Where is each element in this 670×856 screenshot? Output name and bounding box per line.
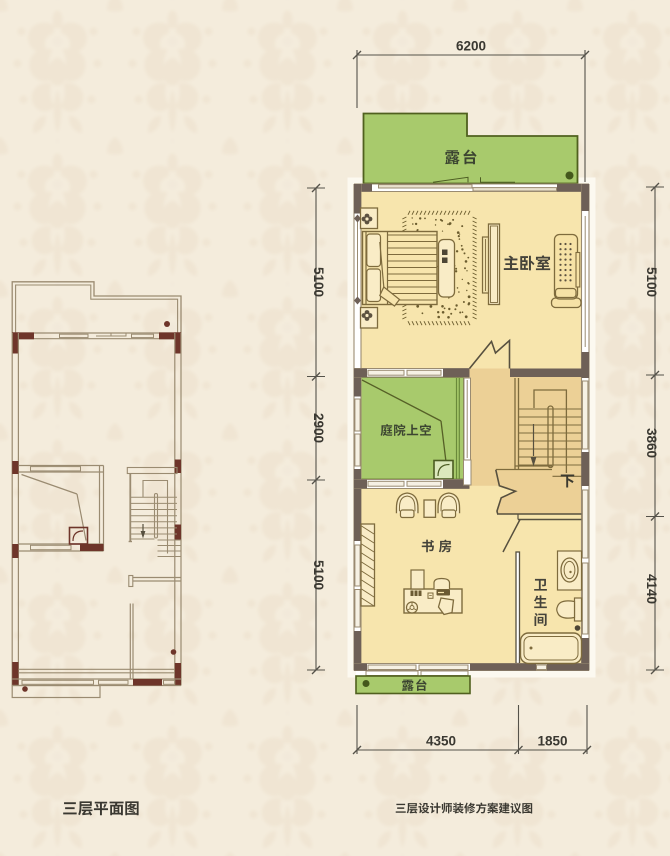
svg-text:5100: 5100 (644, 267, 659, 297)
svg-text:6200: 6200 (456, 39, 486, 54)
svg-text:5100: 5100 (311, 560, 326, 590)
svg-text:5100: 5100 (311, 267, 326, 297)
svg-text:3860: 3860 (644, 428, 659, 458)
svg-text:4140: 4140 (644, 574, 659, 604)
svg-text:1850: 1850 (537, 734, 567, 749)
svg-text:4350: 4350 (426, 734, 456, 749)
svg-text:2900: 2900 (311, 413, 326, 443)
